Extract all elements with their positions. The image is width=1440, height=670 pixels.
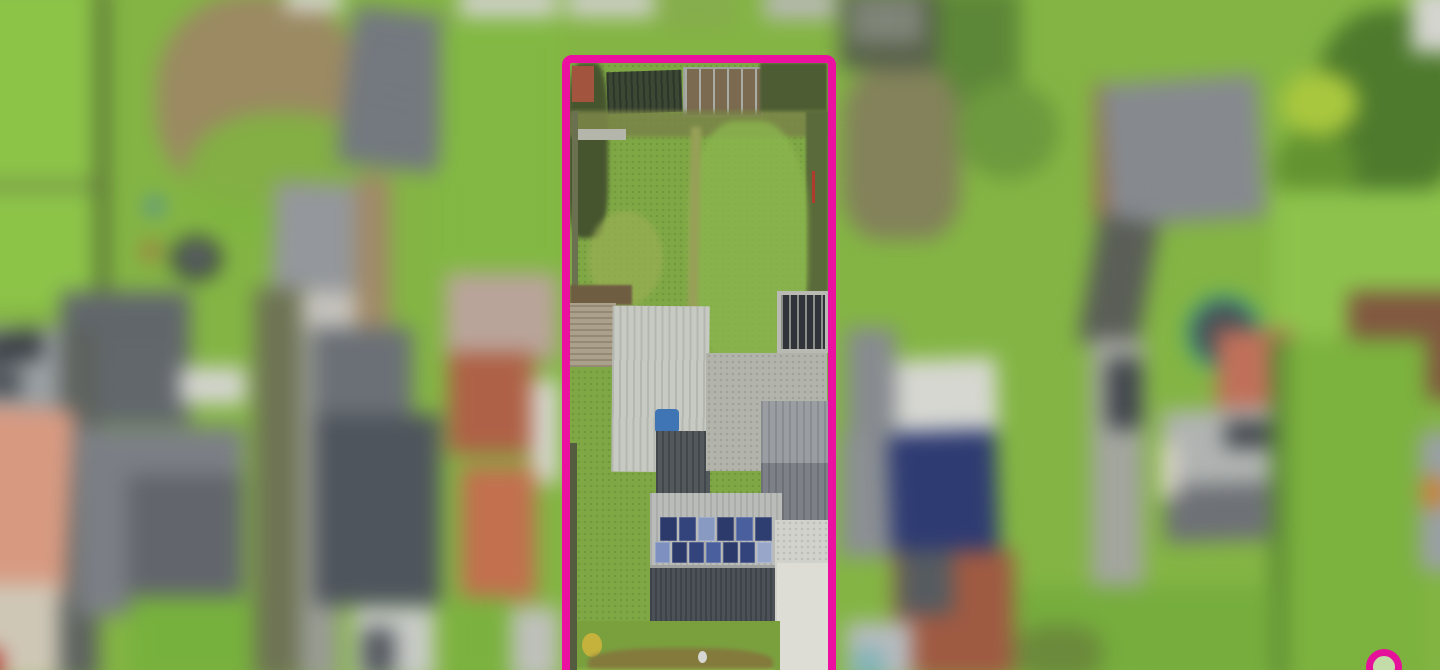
lawn-bottom-left — [130, 597, 259, 670]
brick-building-2 — [461, 466, 536, 598]
salmon-tiled-roof — [0, 405, 75, 596]
soil-strip — [570, 285, 632, 305]
white-strip-mid-left — [180, 367, 246, 404]
solar-panel — [655, 542, 670, 563]
solar-building-panels — [888, 429, 1000, 555]
solar-panel — [717, 517, 734, 541]
hedge-top-right — [760, 63, 827, 113]
trellis-grid — [781, 295, 825, 349]
red-pole — [812, 171, 815, 203]
hedge-right-strip — [806, 111, 828, 311]
olive-lane-vertical — [254, 288, 302, 670]
brick-dark-section — [899, 550, 953, 614]
shrub-bottom-right — [1015, 625, 1103, 670]
driveway-bright-patch — [777, 563, 828, 670]
grey-roof-top-left — [336, 5, 456, 174]
greenhouse-frames — [849, 0, 921, 43]
grey-shed-right-of-plot — [846, 328, 896, 437]
house-lower-slope — [650, 568, 782, 625]
solar-panel — [740, 542, 755, 563]
white-roof-above-plot — [567, 0, 655, 17]
dark-car-bottom-center — [362, 628, 395, 670]
solar-panel — [672, 542, 687, 563]
car-on-road-right — [1107, 359, 1142, 429]
lawn-under-brick — [447, 597, 511, 670]
tan-lane-vertical — [356, 175, 391, 341]
blue-barrel — [147, 198, 163, 214]
fence-horizontal-left — [0, 183, 97, 189]
red-barrel — [144, 244, 158, 258]
green-above-plot — [658, 0, 736, 30]
dark-roof-extension — [656, 431, 710, 495]
shed-roof — [606, 70, 682, 115]
white-roof-top-1 — [285, 0, 342, 11]
solar-panel — [757, 542, 772, 563]
solar-panel — [679, 517, 696, 541]
white-corner-top-right — [1411, 0, 1440, 52]
green-strip-left — [441, 19, 560, 298]
solar-panel — [660, 517, 677, 541]
solar-panel — [689, 542, 704, 563]
tan-pavement-bottom-left — [0, 583, 60, 670]
house-center-left-upper — [314, 328, 412, 419]
left-fence-lower — [570, 443, 577, 670]
property-boundary — [562, 55, 836, 670]
dusty-pink-patio — [446, 273, 558, 361]
grey-house-left-slope — [128, 475, 244, 616]
grey-roof-mid-left — [271, 181, 368, 293]
solar-panel — [755, 517, 772, 541]
garage-roof-upper — [761, 401, 828, 463]
stone-wall-bit — [578, 129, 626, 140]
bird-bath — [698, 651, 707, 663]
driveway-curve-right — [1078, 214, 1160, 352]
solar-panel — [698, 517, 715, 541]
brick-store — [572, 66, 594, 102]
barn-roof-right — [1100, 74, 1267, 227]
grey-roof-above-plot — [763, 0, 835, 19]
solar-panel — [723, 542, 738, 563]
brick-building-1 — [449, 353, 534, 454]
lawn-right-mid — [1287, 338, 1427, 670]
house-right-white-wall — [1161, 442, 1178, 499]
black-tub-inner — [184, 247, 209, 268]
autumn-shrub-row — [588, 648, 773, 670]
lawn-top-left — [0, 0, 104, 309]
aerial-photo — [0, 0, 1440, 670]
fence-line-top-left — [97, 0, 106, 294]
brown-shrubs-right — [842, 69, 961, 240]
orange-object-far-right — [1422, 477, 1440, 508]
parked-car-2 — [0, 367, 22, 397]
solar-panel — [706, 542, 721, 563]
solar-panel — [736, 517, 753, 541]
greenhouse — [683, 67, 763, 117]
grey-patch-below-plot-left — [511, 607, 560, 670]
teal-car — [852, 649, 883, 670]
solar-building-white-roof — [888, 357, 998, 435]
tree-blob-right — [956, 81, 1059, 179]
lime-bush — [1281, 71, 1359, 135]
blue-pool — [655, 409, 679, 433]
house-center-left-roof — [314, 415, 440, 605]
white-roof-top-2 — [459, 0, 557, 17]
decking — [570, 303, 616, 367]
